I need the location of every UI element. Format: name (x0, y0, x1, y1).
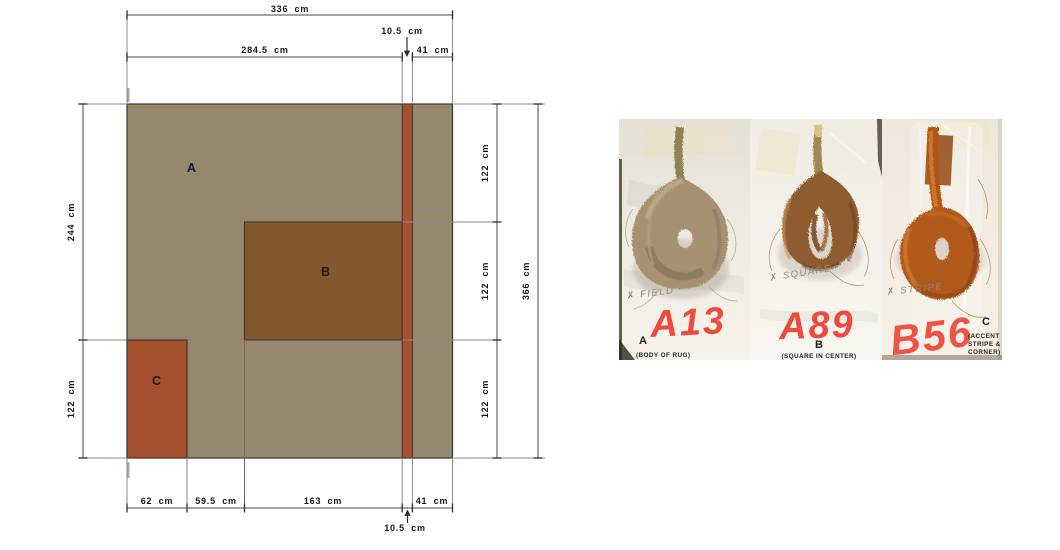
sample-letter: B (815, 339, 823, 351)
dim-bottom-1: 62 cm (141, 496, 174, 506)
dim-left-upper: 244 cm (66, 203, 76, 241)
dim-top-right: 41 cm (417, 45, 450, 55)
region-b-label: B (321, 265, 331, 279)
dim-total-height: 366 cm (521, 262, 531, 300)
dim-top-left: 284.5 cm (241, 45, 288, 55)
dim-bottom-3: 163 cm (304, 496, 342, 506)
rug-spec-sheet: 336 cm 10.5 cm 284.5 cm 41 cm 244 cm 122… (0, 0, 1060, 550)
dim-stripe-bottom: 10.5 cm (384, 523, 426, 533)
region-c-corner (127, 340, 187, 458)
dim-right-1: 122 cm (480, 144, 490, 182)
dim-left-lower: 122 cm (66, 380, 76, 418)
region-c-label: C (152, 374, 162, 388)
sample-letter: A (639, 335, 647, 347)
sample-photo-a13: ✗ FIELD A13 A (BODY OF RUG) (619, 119, 750, 360)
sample-photo-b56: ✗ STRIPE B56 C (ACCENT STRIPE & CORNER) (882, 119, 1002, 360)
rug-dimension-drawing: 336 cm 10.5 cm 284.5 cm 41 cm 244 cm 122… (0, 0, 565, 550)
sample-caption-line1: (ACCENT (968, 333, 1000, 340)
photo-edge-shadow (619, 159, 622, 360)
yarn-sample-photos: ✗ FIELD A13 A (BODY OF RUG) (619, 119, 1002, 360)
dim-stripe-top: 10.5 cm (381, 26, 423, 36)
marker-code: A13 (648, 300, 727, 346)
dim-right-3: 122 cm (480, 380, 490, 418)
sample-caption-line3: CORNER) (968, 349, 1001, 356)
region-a-label: A (187, 161, 197, 175)
sample-photo-a89: ✗ SQUARE A89 B (SQUARE IN CENTER) (750, 119, 882, 360)
sample-letter: C (982, 316, 990, 328)
dim-bottom-4: 41 cm (416, 496, 449, 506)
sample-caption-line2: STRIPE & (968, 341, 1001, 348)
region-b-center-square (245, 222, 403, 340)
marker-code: B56 (887, 308, 975, 360)
region-accent-stripe (402, 104, 412, 458)
dim-right-2: 122 cm (480, 262, 490, 300)
dim-total-width: 336 cm (271, 4, 309, 14)
dim-bottom-2: 59.5 cm (195, 496, 237, 506)
sample-caption: (BODY OF RUG) (636, 352, 690, 359)
sample-caption: (SQUARE IN CENTER) (781, 353, 856, 360)
